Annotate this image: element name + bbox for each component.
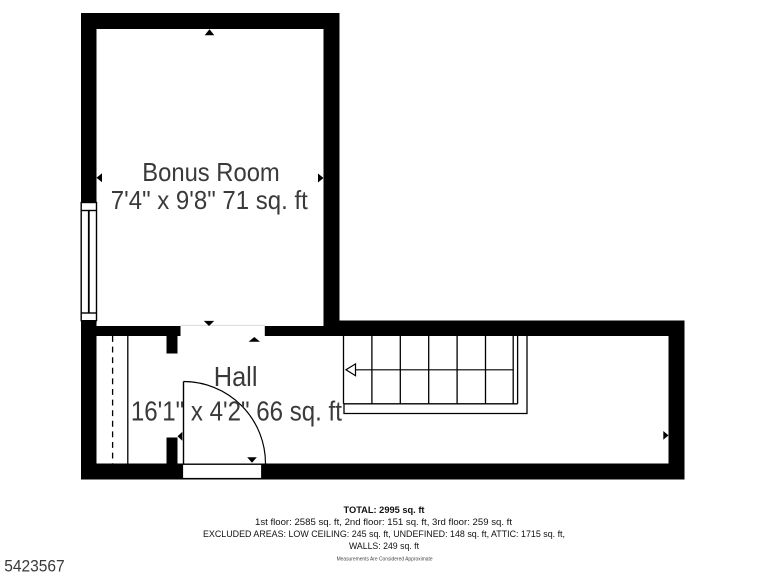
svg-text:7'4" x 9'8" 71 sq. ft: 7'4" x 9'8" 71 sq. ft (111, 185, 309, 215)
svg-text:1st floor: 2585 sq. ft, 2nd fl: 1st floor: 2585 sq. ft, 2nd floor: 151 s… (255, 517, 513, 527)
svg-text:5423567: 5423567 (4, 557, 64, 576)
svg-text:Bonus Room: Bonus Room (142, 157, 280, 187)
svg-text:TOTAL: 2995 sq. ft: TOTAL: 2995 sq. ft (344, 505, 425, 515)
svg-text:Hall: Hall (214, 361, 258, 392)
svg-text:EXCLUDED AREAS: LOW CEILING: 2: EXCLUDED AREAS: LOW CEILING: 245 sq. ft,… (203, 529, 565, 539)
svg-text:WALLS: 249 sq. ft: WALLS: 249 sq. ft (349, 541, 419, 551)
svg-text:16'1" x 4'2" 66 sq. ft: 16'1" x 4'2" 66 sq. ft (131, 395, 342, 426)
svg-text:Measurements Are Considered Ap: Measurements Are Considered Approximate (337, 557, 433, 563)
